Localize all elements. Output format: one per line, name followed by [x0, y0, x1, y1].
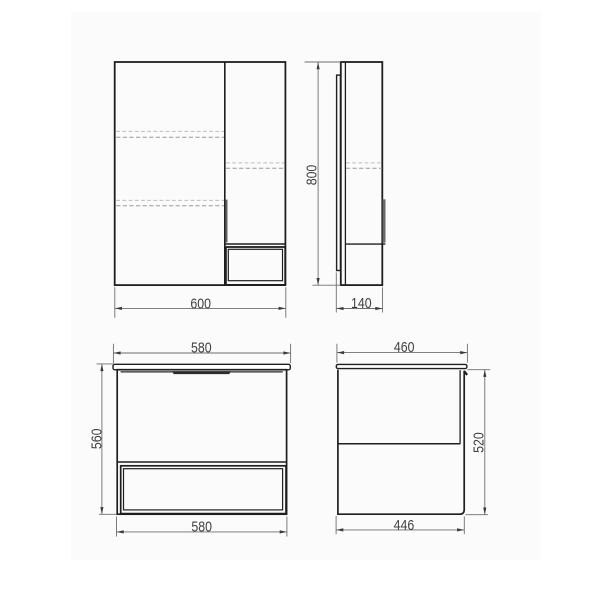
svg-text:520: 520 — [472, 432, 488, 453]
svg-text:580: 580 — [191, 340, 212, 356]
svg-text:600: 600 — [190, 297, 211, 313]
svg-text:800: 800 — [305, 165, 321, 186]
svg-text:460: 460 — [394, 340, 415, 356]
svg-text:580: 580 — [191, 520, 212, 536]
svg-text:140: 140 — [351, 296, 372, 312]
svg-text:446: 446 — [394, 518, 415, 534]
svg-text:560: 560 — [89, 429, 105, 450]
